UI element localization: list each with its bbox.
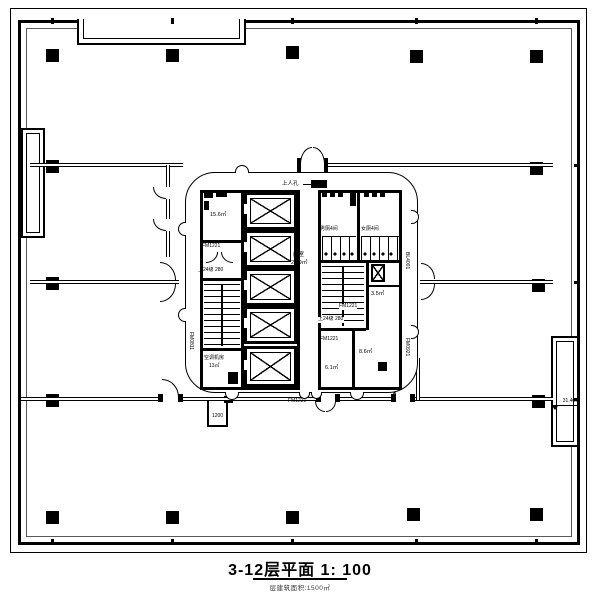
fixture-mark [216,193,227,197]
room-area-label: 15.6㎡ [210,212,226,218]
wall-segment [203,348,241,351]
grid-tick [171,18,174,24]
fixture-mark [364,193,369,197]
grid-tick [415,539,418,545]
grid-tick [51,18,54,24]
wall-segment [368,285,402,287]
column [46,49,59,62]
wall-segment [352,330,355,388]
drawing-subtitle: 层建筑面积:1500㎡ [0,582,600,592]
door-tag-rotated: FM0921 [404,338,409,356]
hatch-label: 上人孔 [282,181,299,187]
door-jamb [410,394,415,402]
fire-door-tag: FM1221 [202,244,220,250]
elevator-door [244,204,248,214]
grid-tick [574,398,580,401]
title-underline [253,578,347,580]
grid-tick [171,539,174,545]
room-name-label: 空调机房 [204,356,224,362]
room-area-label: 24.9㎡ [291,260,307,266]
wall-segment [30,163,183,167]
fixture-mark [204,201,209,210]
wall-segment [357,192,360,262]
room-area-label: 8.6㎡ [359,349,372,355]
column [410,50,423,63]
room-area-label: 3.5㎡ [371,291,384,297]
room-name-label: 女厕4间 [361,227,379,233]
grid-tick [574,281,580,284]
wall-segment [320,328,366,331]
elevator-x-icon [250,352,291,381]
fire-door-tag: FM1221 [339,304,357,310]
elevator-shaft [244,192,297,230]
shaft-x-icon [371,264,385,282]
room-area-label: 13㎡ [209,364,220,370]
toilet-stalls [361,236,399,260]
door-tag-rotated: BL4001 [404,252,409,269]
fire-door-tag: FM1221 [288,399,306,405]
fixture-mark [204,193,213,198]
wall-segment [320,260,400,263]
north-recess-inner-line [83,19,240,39]
toilet-stalls [322,236,356,260]
grid-tick [535,18,538,24]
elevator-x-icon [250,198,291,224]
column [166,49,179,62]
elevator-shaft [244,268,297,306]
fixture-mark [330,193,335,197]
column [286,46,299,59]
stair-note: 上24级 280 [317,317,344,323]
door-bump [178,222,186,236]
fixture-mark [228,372,238,384]
wall-segment [325,163,553,167]
drawing-title: 3-12层平面 1: 100 [0,556,600,580]
wall-segment [366,262,369,330]
elevator-shaft [244,346,297,387]
shaft-hatch [311,180,327,188]
grid-tick [535,539,538,545]
stair-note: 上24级 280 [198,268,223,274]
fixture-mark [322,193,327,197]
door-bump [235,165,249,173]
fixture-mark [372,193,377,197]
fixture-mark [378,362,387,371]
column [407,508,420,521]
fire-door-tag: FM1221 [320,337,338,343]
door-tag-rotated: FM0811 [188,332,193,350]
column [166,511,179,524]
wall-segment [30,280,179,284]
leader-line [303,184,311,185]
column [530,50,543,63]
wall-segment [203,278,241,281]
wall-segment [420,280,553,284]
elevation-triangle-icon [552,406,558,410]
elevator-shaft [244,230,297,268]
column [46,511,59,524]
fixture-mark [380,193,385,197]
room-name-label: 男厕4间 [320,227,338,233]
door-bump [178,308,186,322]
west-panel-inner-line [26,133,40,233]
grid-tick [291,539,294,545]
column [286,511,299,524]
dimension-label: 1200 [206,414,229,420]
wall-segment [166,165,170,257]
elevator-x-icon [250,312,291,338]
column [530,508,543,521]
stair-rail [221,284,223,346]
grid-tick [574,164,580,167]
elevator-x-icon [250,274,291,300]
room-name-label: 前室 [293,252,304,258]
east-panel-inner-line [556,341,574,442]
floor-plan-canvas: { "document": { "type": "architectural f… [0,0,600,600]
wall-segment [337,397,393,401]
grid-tick [291,18,294,24]
shaft-hatch [350,192,356,206]
elevator-door [244,360,248,370]
wall-segment [21,397,161,401]
grid-tick [415,18,418,24]
wall-segment [411,397,553,401]
elevator-door [244,242,248,252]
grid-tick [51,539,54,545]
elevator-door [244,318,248,328]
elevator-shaft [244,306,297,344]
fixture-mark [338,193,343,197]
elevator-x-icon [250,236,291,262]
elevator-door [244,280,248,290]
room-area-label: 6.1㎡ [325,365,338,371]
